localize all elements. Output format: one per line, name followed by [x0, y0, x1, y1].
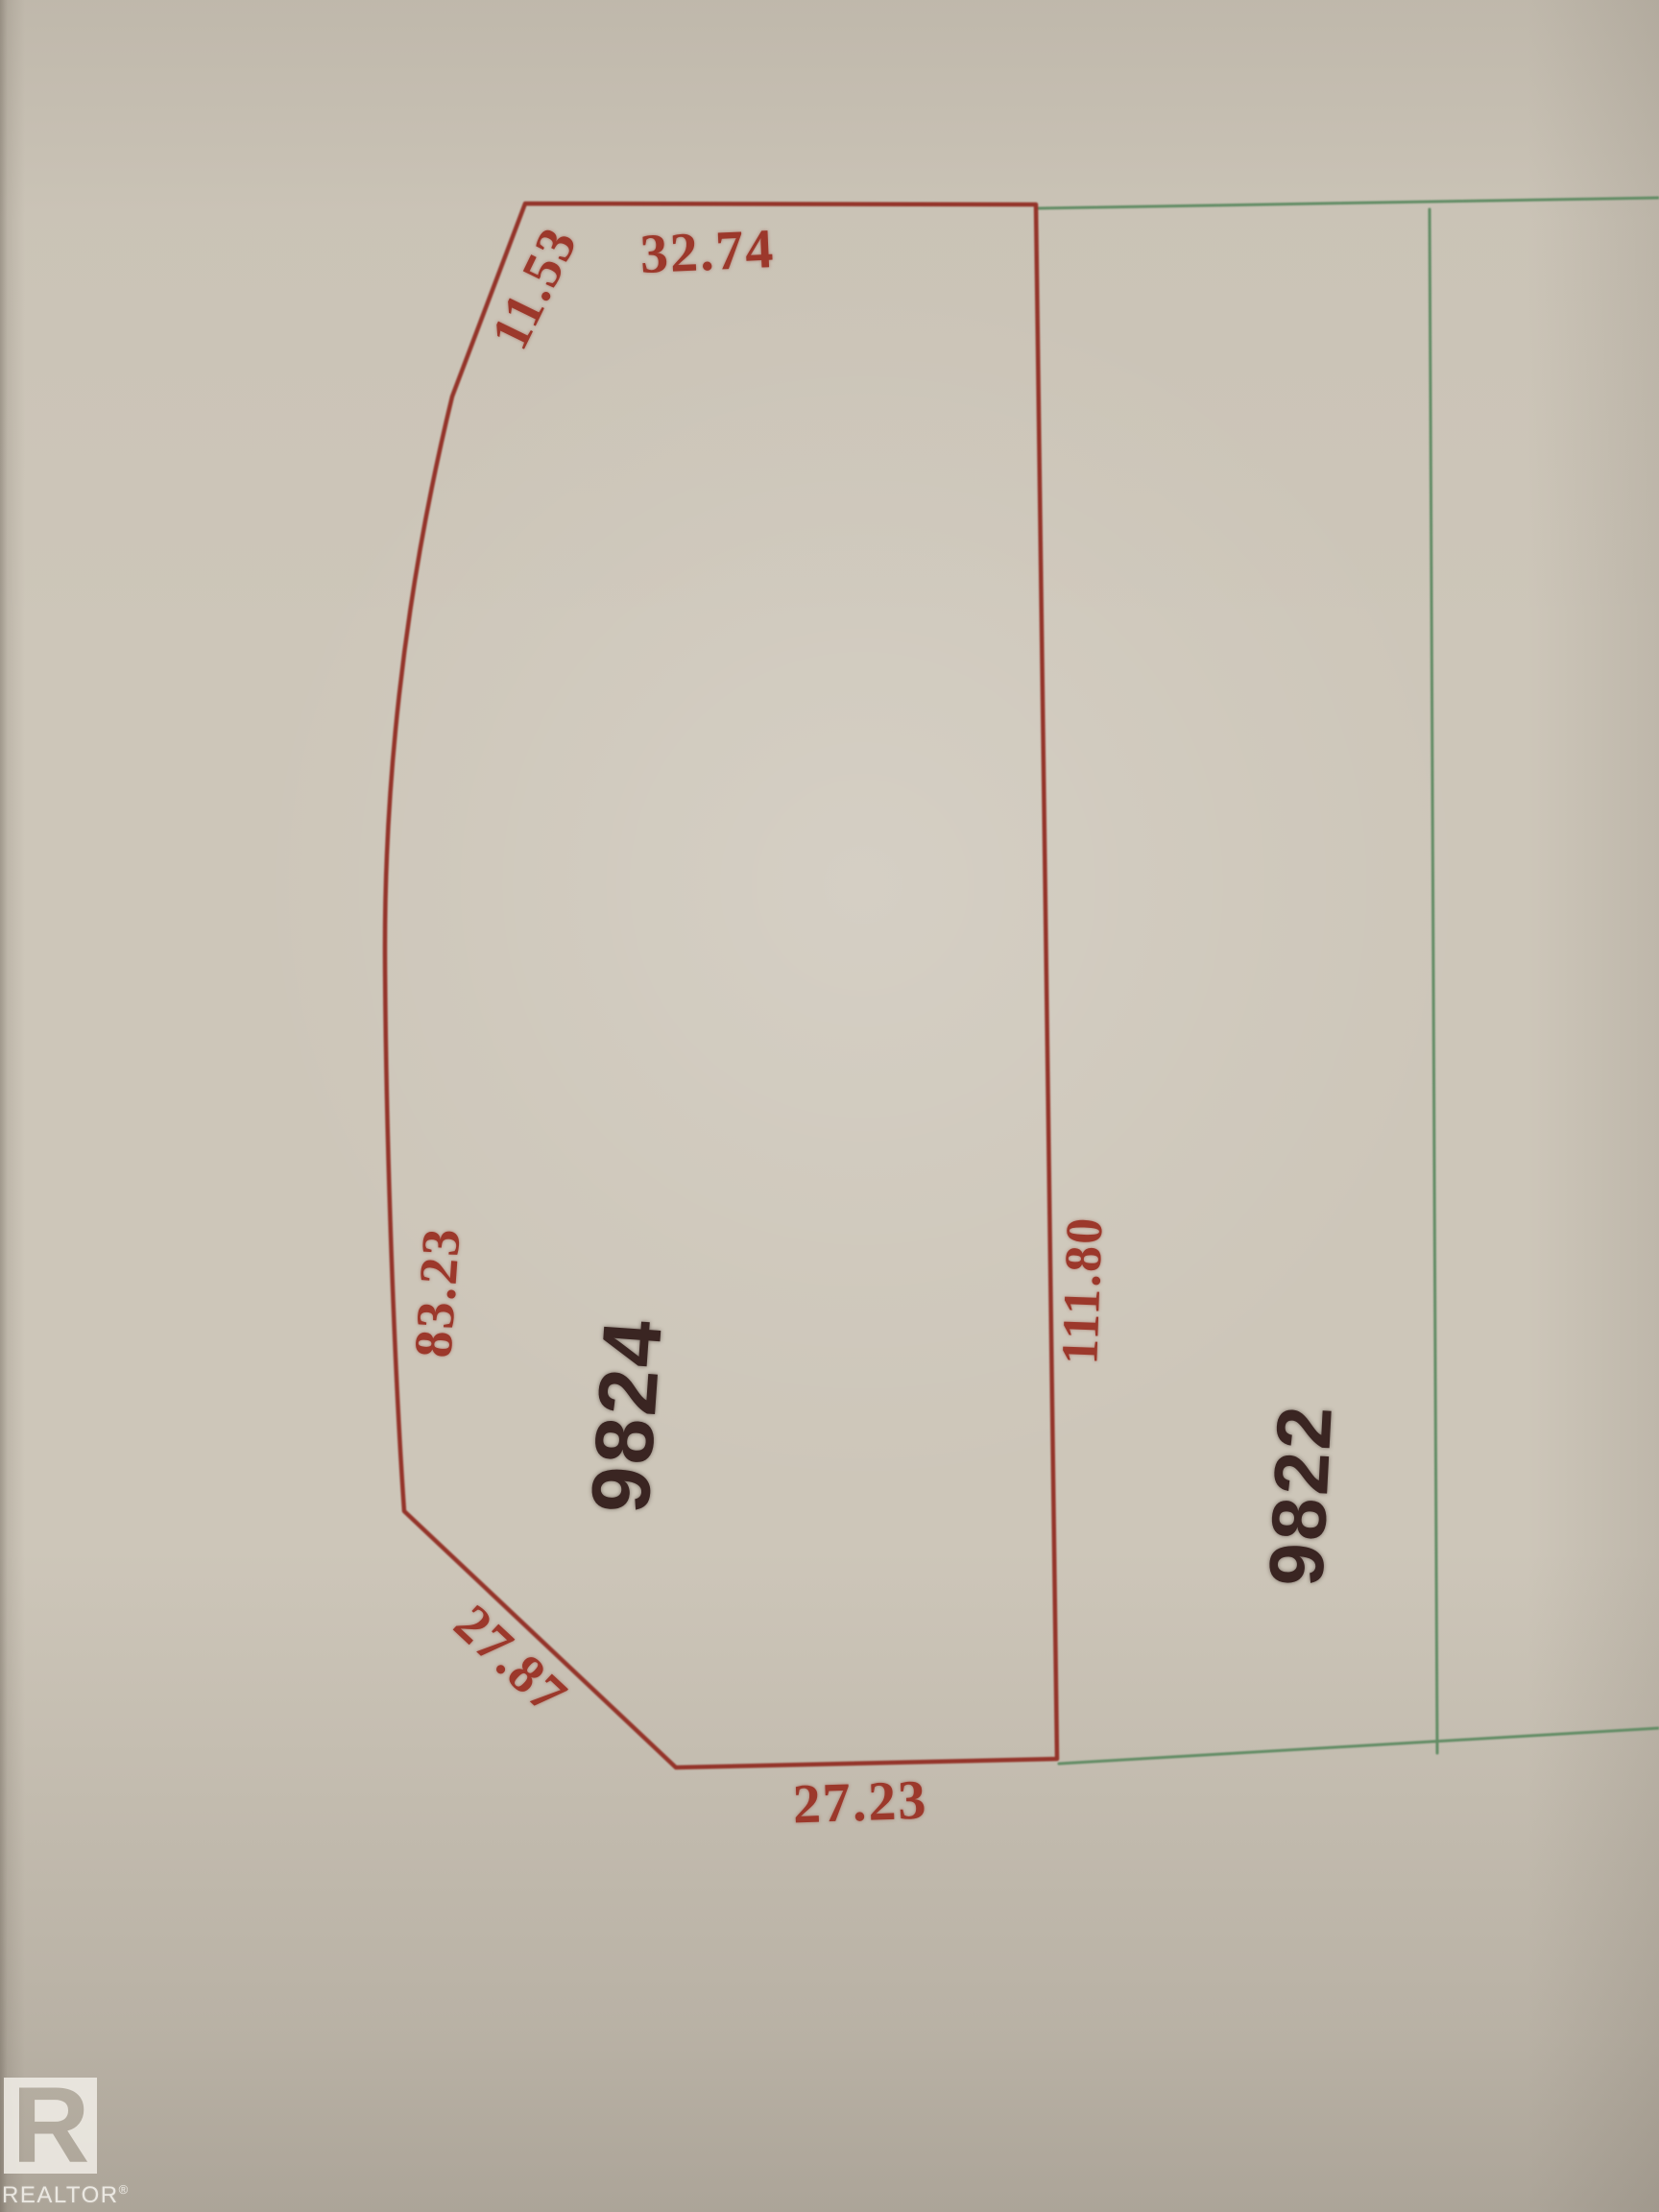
- adjacent-lot-top-line: [1037, 198, 1659, 208]
- dim-left-label: 83.23: [406, 1225, 469, 1359]
- dim-top-label: 32.74: [639, 221, 777, 282]
- lot-number-9824: 9824: [579, 1315, 675, 1516]
- adjacent-lot-bottom-line: [1059, 1728, 1659, 1764]
- realtor-watermark-text: REALTOR®: [2, 2183, 138, 2207]
- adjacent-lot-right-line: [1430, 209, 1437, 1753]
- main-lot-boundary: [385, 204, 1057, 1767]
- plat-linework: [0, 0, 1659, 2212]
- registered-trademark-symbol: ®: [119, 2182, 129, 2197]
- plat-map-photo: 32.74 11.53 83.23 111.80 27.87 27.23 982…: [0, 0, 1659, 2212]
- dim-bottom-label: 27.23: [792, 1772, 928, 1833]
- realtor-watermark-word: REALTOR: [2, 2182, 119, 2208]
- dim-right-label: 111.80: [1053, 1215, 1110, 1365]
- realtor-watermark: R REALTOR®: [4, 2078, 138, 2207]
- realtor-logo-icon: R: [4, 2078, 98, 2176]
- lot-number-9822: 9822: [1258, 1402, 1344, 1588]
